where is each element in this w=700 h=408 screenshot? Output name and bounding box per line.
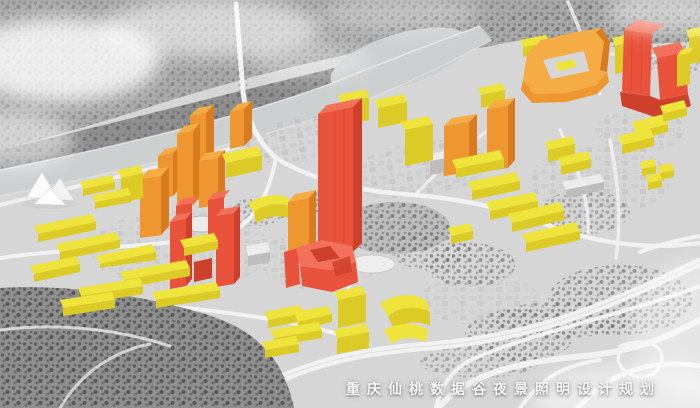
caption-title: 重庆仙桃数据谷夜景照明设计规划	[346, 379, 661, 399]
masterplan-rendering: 重庆仙桃数据谷夜景照明设计规划	[0, 0, 700, 408]
aerial-scene	[0, 0, 700, 408]
yellow-cube-center-south	[334, 286, 369, 354]
